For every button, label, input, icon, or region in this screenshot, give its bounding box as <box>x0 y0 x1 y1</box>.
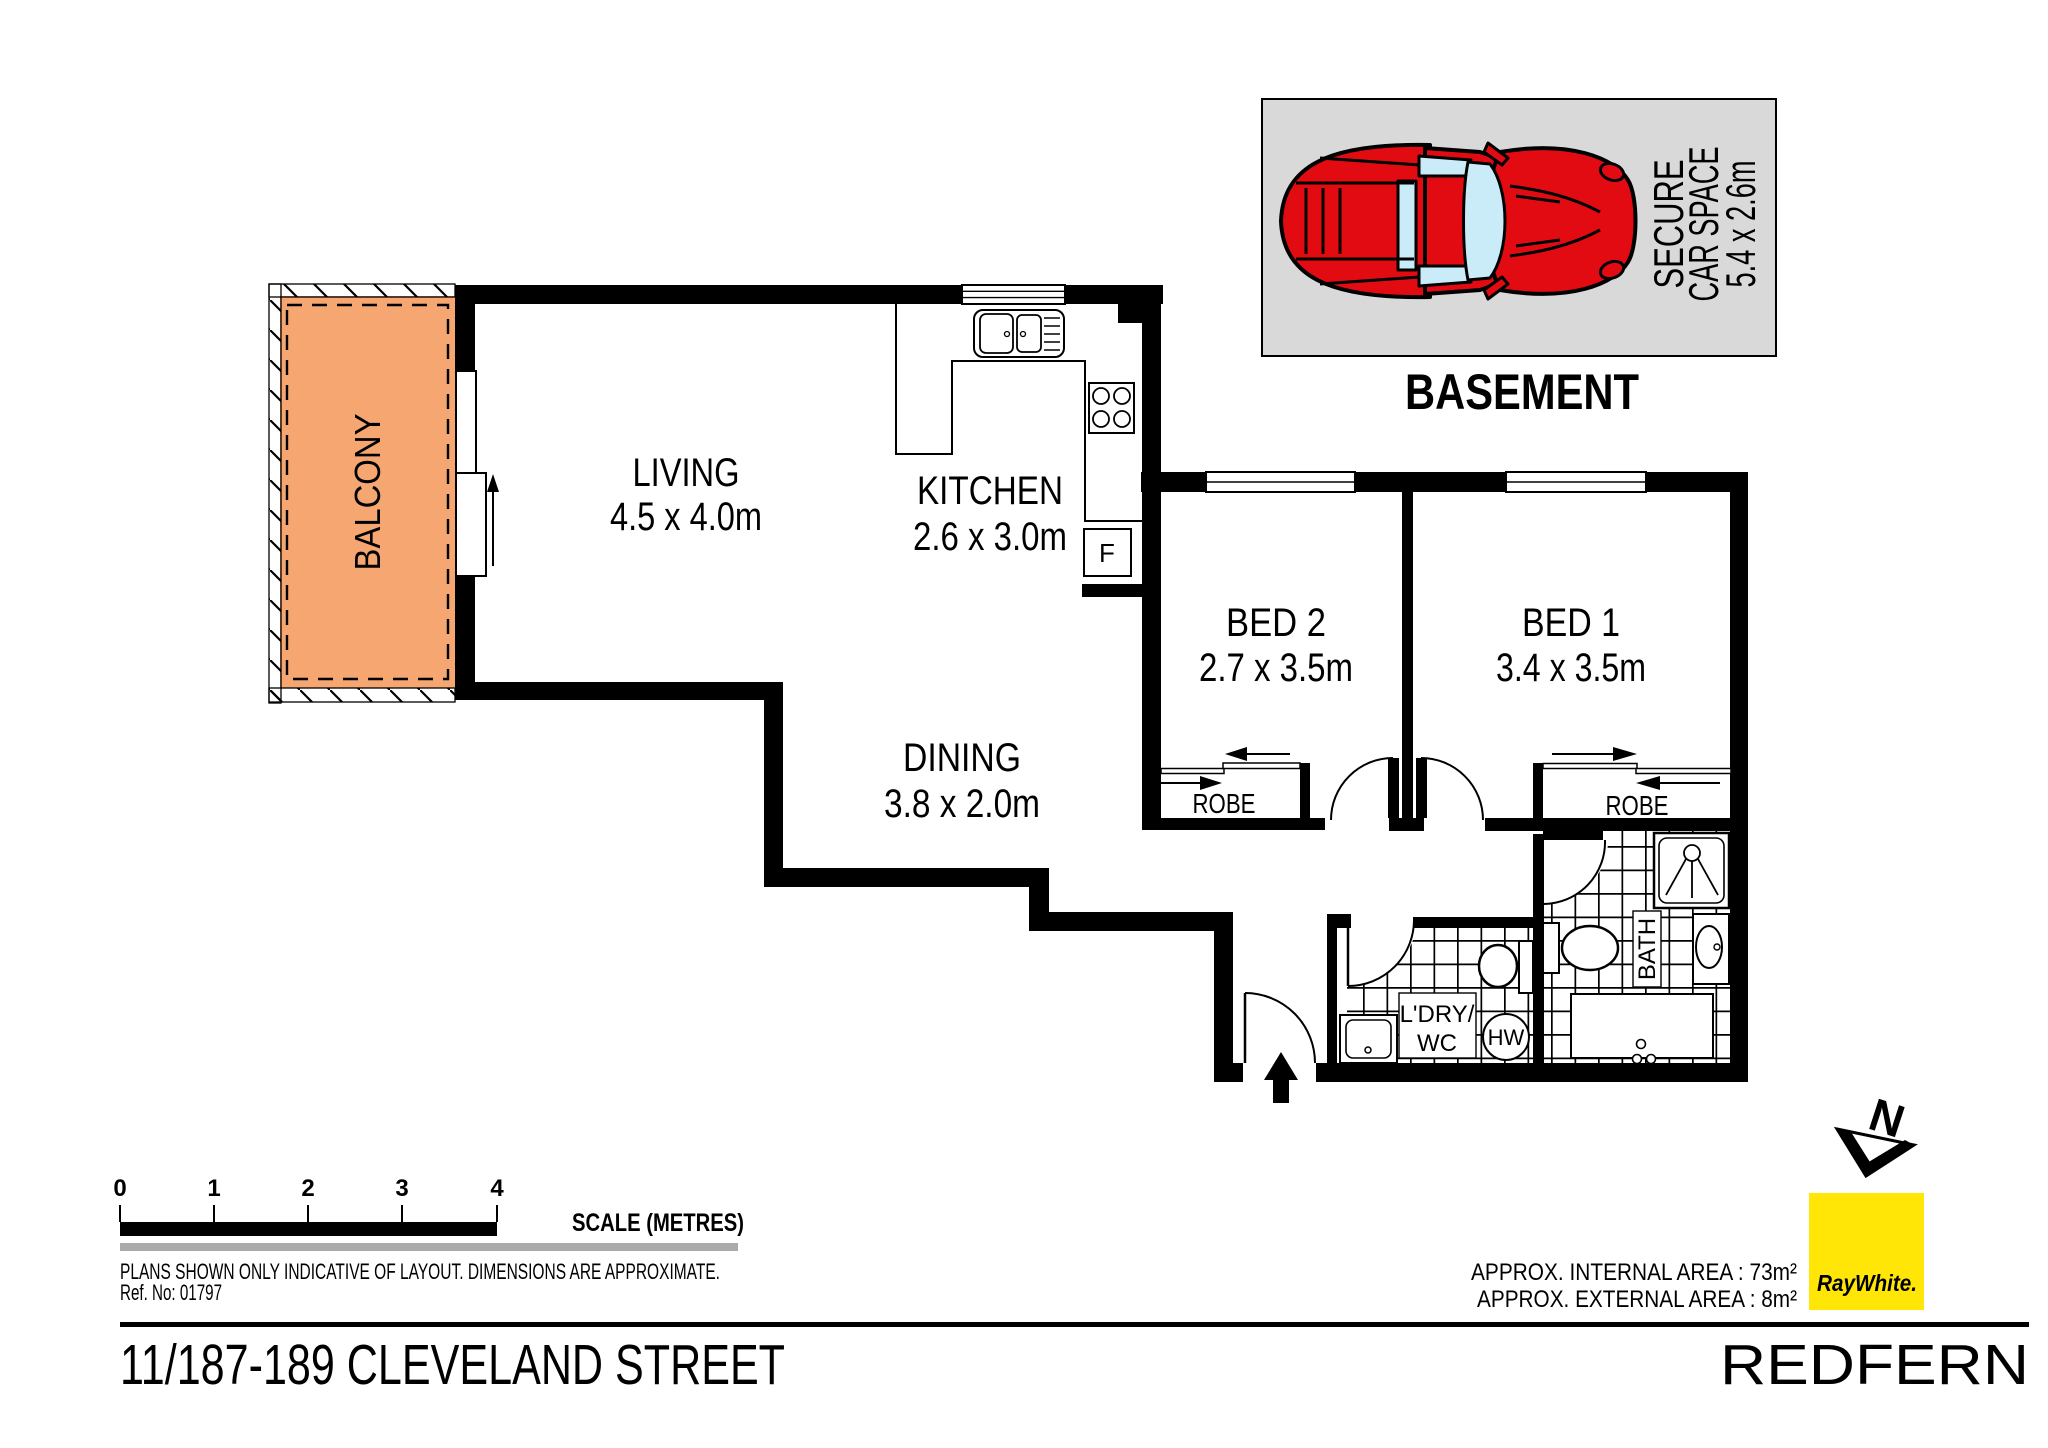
svg-text:SCALE (METRES): SCALE (METRES) <box>572 1209 744 1237</box>
svg-text:3: 3 <box>395 1175 408 1202</box>
svg-text:3.8 x 2.0m: 3.8 x 2.0m <box>884 782 1040 826</box>
svg-text:2.7 x 3.5m: 2.7 x 3.5m <box>1199 646 1353 690</box>
svg-text:REDFERN: REDFERN <box>1720 1333 2029 1397</box>
svg-text:2.6 x 3.0m: 2.6 x 3.0m <box>913 515 1067 559</box>
svg-text:2: 2 <box>301 1175 314 1202</box>
svg-text:ROBE: ROBE <box>1606 790 1669 821</box>
svg-text:BASEMENT: BASEMENT <box>1405 364 1639 420</box>
svg-text:BATH: BATH <box>1634 918 1661 980</box>
svg-text:4.5 x 4.0m: 4.5 x 4.0m <box>610 495 762 539</box>
svg-text:APPROX. INTERNAL AREA : 73m²: APPROX. INTERNAL AREA : 73m² <box>1471 1259 1797 1286</box>
svg-text:4: 4 <box>490 1175 504 1202</box>
svg-text:RayWhite.: RayWhite. <box>1817 1270 1917 1296</box>
svg-text:5.4 x 2.6m: 5.4 x 2.6m <box>1717 161 1764 288</box>
svg-text:0: 0 <box>113 1175 126 1202</box>
svg-text:3.4 x 3.5m: 3.4 x 3.5m <box>1496 646 1646 690</box>
svg-text:KITCHEN: KITCHEN <box>917 469 1063 513</box>
svg-text:LIVING: LIVING <box>633 451 740 495</box>
svg-text:WC: WC <box>1417 1030 1457 1057</box>
svg-text:ROBE: ROBE <box>1193 788 1256 819</box>
svg-text:11/187-189 CLEVELAND STREET: 11/187-189 CLEVELAND STREET <box>120 1333 785 1397</box>
svg-text:HW: HW <box>1488 1025 1525 1050</box>
svg-text:BED 2: BED 2 <box>1226 601 1326 645</box>
svg-text:1: 1 <box>207 1175 220 1202</box>
svg-text:DINING: DINING <box>903 736 1021 780</box>
svg-text:APPROX. EXTERNAL AREA : 8m²: APPROX. EXTERNAL AREA : 8m² <box>1477 1286 1797 1313</box>
svg-text:Ref. No: 01797: Ref. No: 01797 <box>120 1280 222 1305</box>
svg-text:BALCONY: BALCONY <box>347 414 388 571</box>
svg-text:F: F <box>1099 538 1115 568</box>
svg-text:L'DRY/: L'DRY/ <box>1400 1001 1475 1028</box>
svg-text:BED 1: BED 1 <box>1522 601 1620 645</box>
